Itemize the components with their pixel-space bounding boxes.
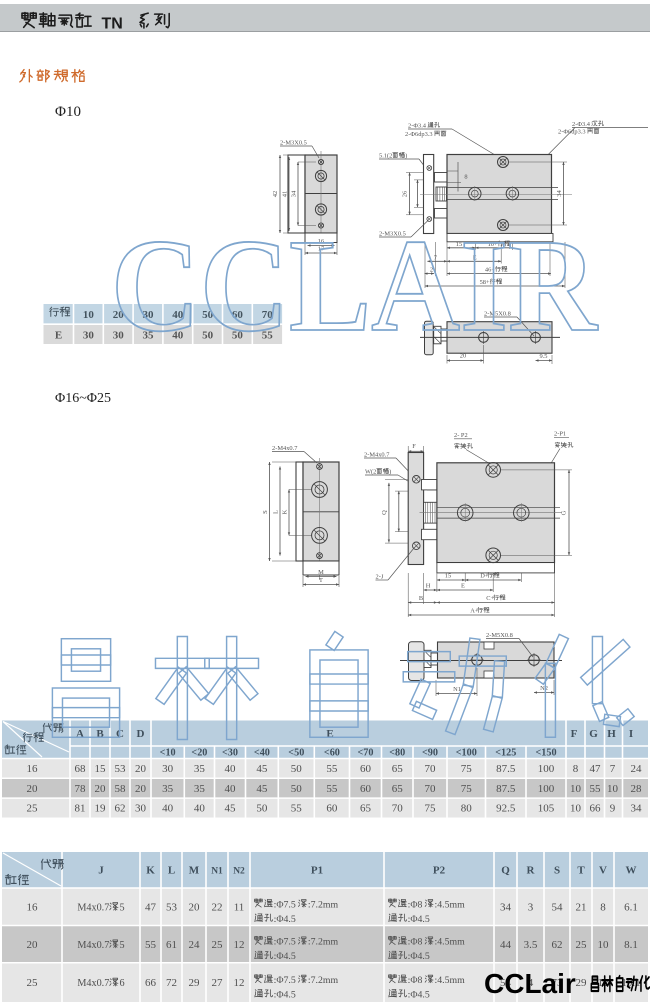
svg-text:22: 22	[212, 902, 223, 914]
svg-text:M4x0.7: M4x0.7	[77, 940, 109, 951]
svg-text:10: 10	[83, 309, 95, 321]
svg-text:80: 80	[461, 803, 473, 815]
svg-text:C+: C+	[486, 595, 494, 602]
svg-text:10: 10	[570, 803, 582, 815]
svg-text:10: 10	[598, 939, 610, 951]
svg-text:30: 30	[135, 803, 147, 815]
svg-text:87.5: 87.5	[496, 763, 516, 775]
svg-text:45: 45	[256, 763, 268, 775]
svg-text:W(2: W(2	[365, 469, 376, 476]
svg-text:CCLair: CCLair	[484, 968, 576, 999]
svg-text:70: 70	[425, 763, 437, 775]
svg-text:5: 5	[120, 903, 125, 914]
svg-text:2-Φ6dp3.3: 2-Φ6dp3.3	[405, 131, 433, 138]
svg-text:G: G	[561, 510, 568, 515]
svg-text:65: 65	[392, 763, 404, 775]
svg-text:45: 45	[225, 803, 237, 815]
svg-text:8: 8	[600, 902, 606, 914]
svg-text:26: 26	[402, 191, 409, 197]
svg-text:47: 47	[590, 763, 602, 775]
svg-text:N1: N1	[211, 867, 223, 877]
svg-text:20: 20	[189, 902, 201, 914]
svg-text:30: 30	[83, 330, 95, 342]
svg-text:B: B	[96, 728, 104, 740]
svg-text:10: 10	[570, 783, 582, 795]
svg-text:M4x0.7: M4x0.7	[77, 903, 109, 914]
svg-text:55: 55	[590, 783, 602, 795]
svg-text:44: 44	[500, 939, 512, 951]
svg-text:3: 3	[528, 902, 534, 914]
svg-text:V: V	[599, 865, 607, 877]
svg-text::Φ7.5: :Φ7.5	[274, 937, 296, 948]
svg-text:45: 45	[256, 783, 268, 795]
svg-text::Φ7.5: :Φ7.5	[274, 975, 296, 986]
svg-text:15: 15	[445, 573, 451, 580]
svg-text:20: 20	[27, 939, 39, 951]
svg-text::Φ4.5: :Φ4.5	[274, 989, 296, 1000]
svg-text:62: 62	[115, 803, 126, 815]
svg-text:30: 30	[162, 763, 174, 775]
svg-text:<60: <60	[324, 748, 340, 759]
svg-text:I: I	[629, 728, 633, 740]
svg-text:20: 20	[95, 783, 107, 795]
svg-text:41: 41	[282, 191, 289, 198]
svg-text::Φ8: :Φ8	[408, 899, 423, 910]
svg-text:F: F	[571, 728, 578, 740]
svg-text:<40: <40	[254, 748, 270, 759]
svg-text:7: 7	[610, 763, 616, 775]
svg-text::7.2mm: :7.2mm	[308, 975, 339, 986]
svg-text:P1: P1	[311, 865, 323, 877]
svg-text:70: 70	[425, 783, 437, 795]
svg-text:47: 47	[145, 902, 157, 914]
svg-text:16: 16	[27, 763, 39, 775]
svg-text:40: 40	[162, 803, 174, 815]
svg-text:81: 81	[75, 803, 86, 815]
svg-text:72: 72	[166, 977, 177, 989]
svg-text::Φ4.5: :Φ4.5	[408, 951, 430, 962]
svg-text:25: 25	[27, 803, 39, 815]
svg-text:55: 55	[326, 763, 338, 775]
svg-text:34: 34	[556, 190, 563, 197]
svg-text:<50: <50	[288, 748, 304, 759]
svg-text:21: 21	[576, 902, 587, 914]
svg-text:<150: <150	[535, 748, 556, 759]
svg-text::Φ4.5: :Φ4.5	[274, 914, 296, 925]
svg-text::4.5mm: :4.5mm	[435, 975, 466, 986]
svg-text:P2: P2	[433, 865, 446, 877]
svg-text:B: B	[419, 595, 423, 602]
svg-text:2- P2: 2- P2	[454, 432, 468, 439]
svg-text:2-M4x0.7: 2-M4x0.7	[364, 452, 390, 459]
svg-text:58: 58	[115, 783, 127, 795]
svg-text:<70: <70	[358, 748, 374, 759]
svg-text:68: 68	[75, 763, 87, 775]
svg-text:N2: N2	[233, 867, 245, 877]
svg-text:100: 100	[538, 783, 555, 795]
svg-text:15: 15	[95, 763, 107, 775]
svg-text:9: 9	[610, 803, 616, 815]
svg-text:40: 40	[225, 763, 237, 775]
svg-text:29: 29	[189, 977, 201, 989]
svg-text:2-Φ6dp3.3: 2-Φ6dp3.3	[558, 129, 586, 136]
svg-text::Φ7.5: :Φ7.5	[274, 899, 296, 910]
svg-text:55: 55	[291, 803, 303, 815]
svg-text:Q: Q	[501, 865, 510, 877]
svg-text:6: 6	[120, 978, 125, 989]
svg-text:2-Φ3.4: 2-Φ3.4	[408, 123, 427, 130]
svg-text:70: 70	[392, 803, 404, 815]
svg-text:T: T	[319, 577, 323, 584]
svg-text:<100: <100	[456, 748, 477, 759]
svg-text:6.1: 6.1	[624, 902, 638, 914]
svg-text:20: 20	[135, 783, 147, 795]
svg-text:E: E	[326, 728, 333, 740]
svg-text:E: E	[461, 583, 465, 590]
svg-text:55: 55	[326, 783, 338, 795]
svg-text:29: 29	[576, 977, 588, 989]
svg-text:<90: <90	[422, 748, 438, 759]
svg-text:3.5: 3.5	[524, 939, 538, 951]
svg-text:F: F	[412, 443, 416, 450]
svg-text:19: 19	[95, 803, 107, 815]
svg-text:34: 34	[631, 803, 643, 815]
svg-text:R: R	[527, 865, 536, 877]
svg-text:55: 55	[145, 939, 157, 951]
svg-text:2-M3X0.5: 2-M3X0.5	[280, 140, 307, 147]
svg-text:8: 8	[464, 174, 467, 181]
svg-text:60: 60	[360, 783, 372, 795]
svg-text:20: 20	[27, 783, 39, 795]
svg-text:): )	[405, 153, 407, 160]
svg-text:<20: <20	[191, 748, 207, 759]
svg-text:K: K	[282, 509, 289, 514]
svg-text:M: M	[189, 865, 200, 877]
svg-text:J: J	[98, 865, 104, 877]
svg-text:L: L	[168, 865, 175, 877]
svg-text::Φ4.5: :Φ4.5	[408, 989, 430, 1000]
svg-text:M4x0.7: M4x0.7	[77, 978, 109, 989]
svg-text:2-M5X0.8: 2-M5X0.8	[486, 632, 513, 639]
svg-text:L: L	[273, 510, 280, 514]
svg-text:105: 105	[538, 803, 555, 815]
svg-text:34: 34	[291, 190, 298, 197]
svg-text:100: 100	[538, 763, 555, 775]
svg-text:W: W	[626, 865, 637, 877]
svg-text:66: 66	[145, 977, 157, 989]
svg-text:62: 62	[552, 939, 563, 951]
svg-text:87.5: 87.5	[496, 783, 516, 795]
svg-text::7.2mm: :7.2mm	[308, 899, 339, 910]
svg-text:40: 40	[225, 783, 237, 795]
svg-text:<80: <80	[389, 748, 405, 759]
svg-text:E: E	[55, 330, 62, 342]
svg-text:35: 35	[194, 763, 206, 775]
svg-text:K: K	[146, 865, 155, 877]
svg-text:75: 75	[461, 763, 473, 775]
svg-text:50: 50	[291, 763, 303, 775]
svg-text:25: 25	[27, 977, 39, 989]
svg-text:53: 53	[115, 763, 127, 775]
svg-text:66: 66	[590, 803, 602, 815]
svg-text:78: 78	[75, 783, 87, 795]
svg-text:16: 16	[27, 902, 39, 914]
svg-text:25: 25	[576, 939, 588, 951]
svg-text:35: 35	[162, 783, 174, 795]
svg-text:50: 50	[256, 803, 268, 815]
svg-text:54: 54	[552, 902, 564, 914]
svg-text:2-P1: 2-P1	[554, 431, 566, 438]
svg-text:Φ16~Φ25: Φ16~Φ25	[55, 391, 111, 406]
svg-text:5: 5	[120, 940, 125, 951]
svg-text:N2: N2	[540, 685, 548, 692]
svg-text::Φ8: :Φ8	[408, 937, 423, 948]
svg-text:35: 35	[194, 783, 206, 795]
svg-text::Φ4.5: :Φ4.5	[408, 914, 430, 925]
svg-text:S: S	[554, 865, 560, 877]
svg-text::4.5mm: :4.5mm	[435, 899, 466, 910]
svg-text:2-Φ3.4: 2-Φ3.4	[572, 121, 591, 128]
svg-text:M: M	[318, 569, 324, 576]
svg-text:12: 12	[234, 977, 245, 989]
svg-text:75: 75	[425, 803, 437, 815]
svg-text:Q: Q	[381, 510, 388, 515]
svg-text:60: 60	[360, 763, 372, 775]
svg-text:24: 24	[631, 763, 643, 775]
svg-text:D: D	[137, 728, 145, 740]
svg-text:10: 10	[607, 783, 619, 795]
svg-text:12: 12	[234, 939, 245, 951]
svg-text:A: A	[76, 728, 84, 740]
svg-text:28: 28	[631, 783, 643, 795]
svg-text::4.5mm: :4.5mm	[435, 937, 466, 948]
svg-text:60: 60	[326, 803, 338, 815]
svg-text:8.1: 8.1	[624, 939, 638, 951]
svg-text:40: 40	[194, 803, 206, 815]
svg-text:5.1(2: 5.1(2	[379, 153, 392, 160]
svg-text:<30: <30	[222, 748, 238, 759]
svg-text:61: 61	[166, 939, 177, 951]
svg-text:24: 24	[189, 939, 201, 951]
svg-text:CCLAIR: CCLAIR	[111, 211, 599, 359]
svg-text:65: 65	[360, 803, 372, 815]
svg-text:): )	[389, 469, 391, 476]
svg-text::Φ8: :Φ8	[408, 975, 423, 986]
svg-text:25: 25	[212, 939, 224, 951]
svg-text:Φ10: Φ10	[55, 104, 81, 120]
svg-text:S: S	[262, 510, 269, 514]
svg-text::7.2mm: :7.2mm	[308, 937, 339, 948]
svg-text:11: 11	[234, 902, 245, 914]
svg-text:H: H	[426, 583, 431, 590]
svg-text:20: 20	[135, 763, 147, 775]
svg-text:H: H	[607, 728, 616, 740]
svg-text:<10: <10	[160, 748, 176, 759]
svg-text:42: 42	[272, 191, 279, 198]
svg-text:2-M4x0.7: 2-M4x0.7	[272, 445, 298, 452]
svg-text:T: T	[577, 865, 585, 877]
svg-text:65: 65	[392, 783, 404, 795]
svg-text:8: 8	[573, 763, 579, 775]
svg-text:TN: TN	[102, 16, 123, 33]
svg-text:2-J: 2-J	[376, 574, 384, 581]
svg-text:34: 34	[500, 902, 512, 914]
svg-text::Φ4.5: :Φ4.5	[274, 951, 296, 962]
svg-text:27: 27	[212, 977, 224, 989]
svg-text:53: 53	[166, 902, 178, 914]
svg-text:50: 50	[291, 783, 303, 795]
svg-text:<125: <125	[495, 748, 516, 759]
svg-text:92.5: 92.5	[496, 803, 516, 815]
svg-text:75: 75	[461, 783, 473, 795]
svg-text:G: G	[589, 728, 598, 740]
